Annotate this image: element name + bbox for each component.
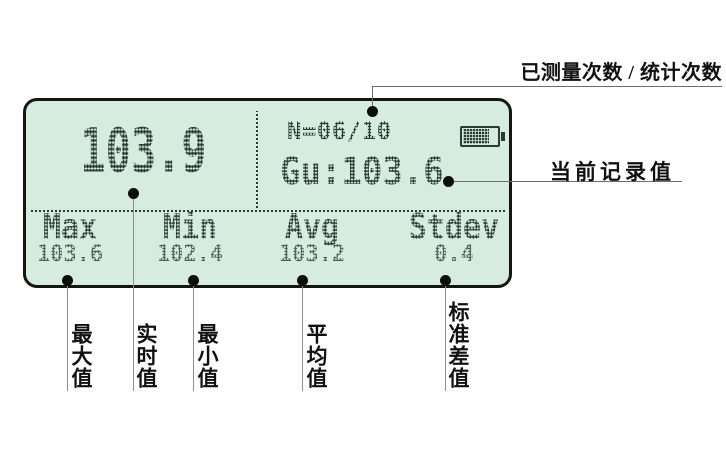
callout-dot-current-record [443,176,454,187]
annotation-min-label: 最小值 [196,323,218,389]
annotation-max-label: 最大值 [70,323,92,389]
stat-value-stdev: 0.4 [409,244,499,266]
callout-dot-max [62,275,73,286]
stat-column-avg: Avg 103.2 [279,211,345,266]
measurement-counter: N=06/10 [287,119,392,143]
stat-column-stdev: Stdev 0.4 [409,211,499,266]
callout-dot-counter [367,106,378,117]
diagram-canvas: 103.9 N=06/10 Gu:103.6 Max 103.6 Min 102… [0,0,726,450]
battery-nub [501,132,505,141]
stat-label-avg: Avg [279,211,345,246]
annotation-stdev-label: 标准差值 [447,301,469,389]
stat-value-max: 103.6 [37,244,103,266]
stat-column-max: Max 103.6 [37,211,103,266]
battery-fill [463,129,489,144]
callout-dot-min [188,275,199,286]
annotation-counter-label: 已测量次数 / 统计次数 [520,56,722,85]
stat-column-min: Min 102.4 [157,211,223,266]
stat-label-min: Min [157,211,223,246]
current-record-value: Gu:103.6 [280,153,444,190]
callout-dot-stdev [440,275,451,286]
battery-icon [460,126,500,147]
callout-dot-avg [297,275,308,286]
annotation-realtime-label: 实时值 [135,323,157,389]
stat-value-avg: 103.2 [279,244,345,266]
callout-line-counter-horizontal [372,86,722,87]
callout-line-max [67,280,68,391]
main-reading: 103.9 [29,121,258,181]
stat-label-stdev: Stdev [409,211,499,246]
annotation-current-record-label: 当前记录值 [550,156,675,186]
callout-line-min [193,280,194,391]
callout-line-avg [302,280,303,391]
annotation-avg-label: 平均值 [305,323,327,389]
stat-value-min: 102.4 [157,244,223,266]
stat-label-max: Max [37,211,103,246]
lcd-display: 103.9 N=06/10 Gu:103.6 Max 103.6 Min 102… [23,98,512,288]
callout-dot-realtime [128,188,139,199]
